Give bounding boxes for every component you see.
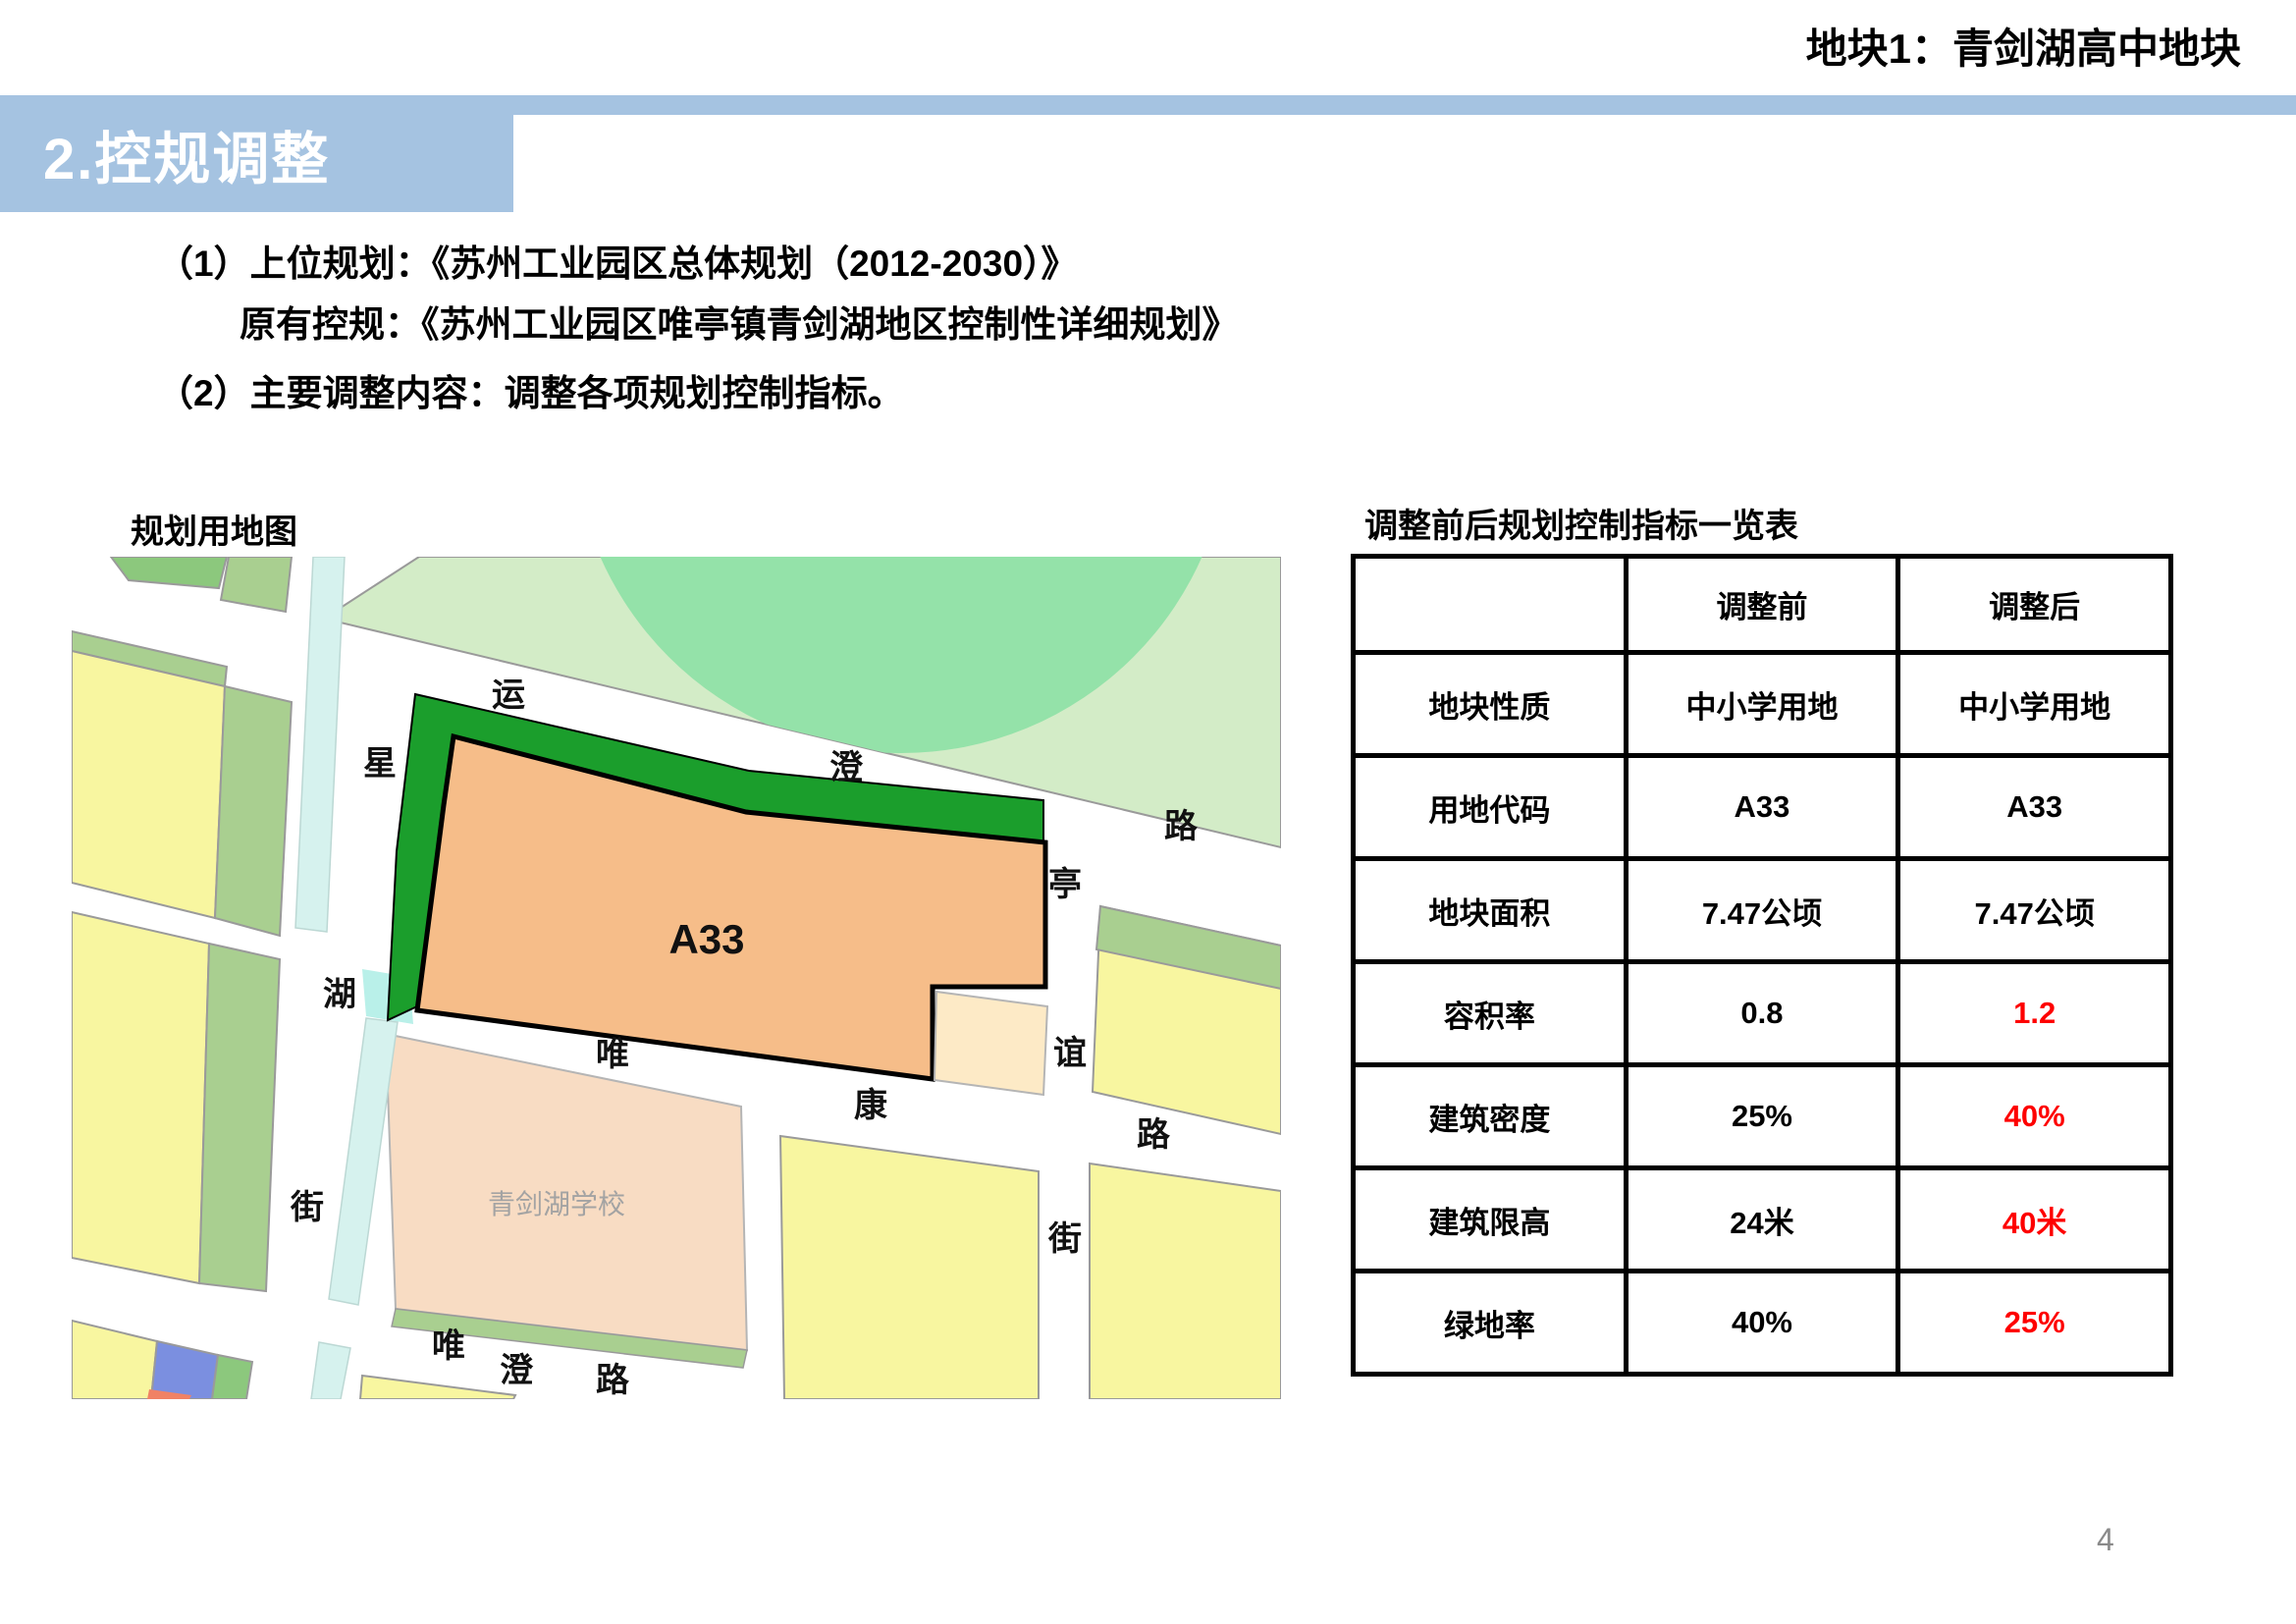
- land-use-map: A33 青剑湖学校 运 澄 路 星 湖 街 亭 谊 街 唯 康 路: [72, 557, 1281, 1399]
- parcel-yellow-south-east: [1090, 1164, 1281, 1399]
- table-section-title: 调整前后规划控制指标一览表: [1364, 499, 1798, 547]
- header-after-cell: 调整后: [1898, 557, 2171, 653]
- row-before-cell: 40%: [1626, 1272, 1898, 1375]
- road-char: 澄: [500, 1352, 534, 1389]
- road-char: 星: [363, 745, 397, 783]
- map-section-title: 规划用地图: [131, 505, 297, 553]
- row-after-cell: 40米: [1898, 1168, 2171, 1272]
- road-char: 路: [596, 1362, 630, 1399]
- sage-band-lower-left: [199, 944, 280, 1291]
- parcel-yellow-south-mid: [780, 1136, 1039, 1399]
- parcel-blue-bottom-left: [151, 1341, 218, 1399]
- notch-cream-parcel: [934, 992, 1047, 1095]
- road-char: 街: [290, 1189, 324, 1226]
- road-char: 亭: [1048, 866, 1082, 903]
- road-char: 湖: [323, 976, 356, 1013]
- table-row: 地块面积 7.47公顷 7.47公顷: [1354, 859, 2171, 962]
- row-label-cell: 用地代码: [1354, 756, 1627, 859]
- canal-bottom: [311, 1342, 350, 1399]
- row-label-cell: 地块面积: [1354, 859, 1627, 962]
- section-title: 2.控规调整: [43, 113, 330, 195]
- row-label-cell: 建筑限高: [1354, 1168, 1627, 1272]
- school-label: 青剑湖学校: [488, 1189, 625, 1219]
- road-char: 唯: [432, 1327, 465, 1365]
- table-row: 容积率 0.8 1.2: [1354, 962, 2171, 1065]
- body-line-1: （1）上位规划：《苏州工业园区总体规划（2012-2030）》: [157, 234, 1078, 287]
- canal-south: [329, 1018, 398, 1305]
- row-after-cell: 1.2: [1898, 962, 2171, 1065]
- green-band-bottom-left: [212, 1355, 252, 1399]
- table-row: 建筑限高 24米 40米: [1354, 1168, 2171, 1272]
- row-before-cell: A33: [1626, 756, 1898, 859]
- parcel-yellow-bottom-left: [72, 1321, 157, 1399]
- road-label-tingyi: 亭 谊 街: [1047, 866, 1087, 1258]
- row-label-cell: 建筑密度: [1354, 1065, 1627, 1168]
- row-before-cell: 7.47公顷: [1626, 859, 1898, 962]
- row-before-cell: 24米: [1626, 1168, 1898, 1272]
- row-label-cell: 地块性质: [1354, 653, 1627, 756]
- row-before-cell: 0.8: [1626, 962, 1898, 1065]
- parcel-yellow-bottom-mid: [360, 1376, 515, 1399]
- road-char: 澄: [829, 749, 864, 786]
- corner-green-parcel: [111, 557, 227, 588]
- plot-heading: 地块1：青剑湖高中地块: [1806, 16, 2241, 76]
- row-before-cell: 中小学用地: [1626, 653, 1898, 756]
- row-after-cell: 40%: [1898, 1065, 2171, 1168]
- row-after-cell: A33: [1898, 756, 2171, 859]
- row-label-cell: 绿地率: [1354, 1272, 1627, 1375]
- table-header-row: 调整前 调整后: [1354, 557, 2171, 653]
- road-char: 运: [492, 677, 525, 714]
- table-row: 地块性质 中小学用地 中小学用地: [1354, 653, 2171, 756]
- row-after-cell: 25%: [1898, 1272, 2171, 1375]
- plot-code-label: A33: [668, 916, 744, 962]
- indicator-table: 调整前 调整后 地块性质 中小学用地 中小学用地 用地代码 A33 A33 地块…: [1351, 554, 2173, 1377]
- body-line-2: 原有控规：《苏州工业园区唯亭镇青剑湖地区控制性详细规划》: [240, 295, 1239, 348]
- table-row: 用地代码 A33 A33: [1354, 756, 2171, 859]
- table-row: 绿地率 40% 25%: [1354, 1272, 2171, 1375]
- road-char: 康: [854, 1086, 887, 1124]
- row-after-cell: 7.47公顷: [1898, 859, 2171, 962]
- row-before-cell: 25%: [1626, 1065, 1898, 1168]
- parcel-yellow-upper-left: [72, 651, 225, 918]
- page-number: 4: [2097, 1522, 2114, 1558]
- row-after-cell: 中小学用地: [1898, 653, 2171, 756]
- table-row: 建筑密度 25% 40%: [1354, 1065, 2171, 1168]
- corner-sage-parcel: [221, 557, 292, 612]
- road-char: 街: [1047, 1220, 1082, 1258]
- road-char: 路: [1137, 1116, 1171, 1154]
- road-char: 路: [1164, 808, 1199, 845]
- header-blank-cell: [1354, 557, 1627, 653]
- body-line-3: （2）主要调整内容：调整各项规划控制指标。: [157, 363, 904, 416]
- road-char: 谊: [1053, 1035, 1087, 1072]
- section-title-banner: 2.控规调整: [0, 95, 513, 212]
- road-char: 唯: [596, 1036, 629, 1073]
- row-label-cell: 容积率: [1354, 962, 1627, 1065]
- slide: 2.控规调整 地块1：青剑湖高中地块 （1）上位规划：《苏州工业园区总体规划（2…: [0, 0, 2296, 1624]
- parcel-yellow-lower-left: [72, 912, 209, 1283]
- header-before-cell: 调整前: [1626, 557, 1898, 653]
- canal-north: [295, 557, 345, 932]
- sage-band-upper-left: [215, 686, 292, 936]
